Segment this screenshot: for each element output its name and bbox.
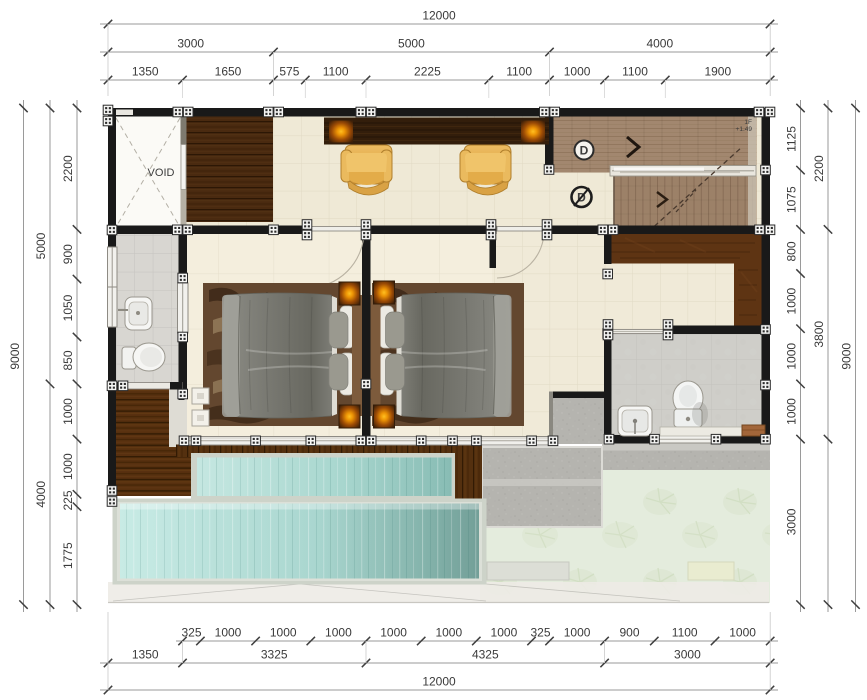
svg-text:1100: 1100 [622, 65, 648, 79]
svg-text:1000: 1000 [61, 398, 75, 425]
svg-text:2200: 2200 [61, 155, 75, 182]
svg-text:575: 575 [279, 65, 299, 79]
svg-text:1100: 1100 [323, 65, 349, 79]
svg-text:325: 325 [530, 626, 550, 640]
svg-text:1900: 1900 [704, 65, 731, 79]
svg-text:2225: 2225 [414, 65, 441, 79]
svg-text:1650: 1650 [215, 65, 242, 79]
svg-text:3000: 3000 [785, 508, 799, 535]
svg-text:5000: 5000 [34, 232, 48, 259]
svg-text:+1.49: +1.49 [736, 126, 753, 133]
svg-text:VOID: VOID [148, 167, 175, 179]
svg-text:1050: 1050 [61, 294, 75, 321]
svg-text:1000: 1000 [491, 626, 518, 640]
svg-text:5000: 5000 [398, 37, 425, 51]
svg-text:225: 225 [61, 490, 75, 510]
svg-text:3000: 3000 [674, 648, 701, 662]
svg-text:1000: 1000 [380, 626, 407, 640]
svg-text:9000: 9000 [8, 343, 22, 370]
svg-text:1075: 1075 [785, 186, 799, 213]
svg-text:1000: 1000 [270, 626, 297, 640]
svg-text:1000: 1000 [215, 626, 242, 640]
svg-text:1350: 1350 [132, 648, 159, 662]
svg-text:3800: 3800 [812, 321, 826, 348]
svg-text:3000: 3000 [177, 37, 204, 51]
svg-text:4000: 4000 [34, 481, 48, 508]
svg-text:900: 900 [619, 626, 639, 640]
svg-text:1100: 1100 [672, 626, 698, 640]
svg-text:4000: 4000 [646, 37, 673, 51]
svg-text:900: 900 [61, 244, 75, 264]
svg-text:1100: 1100 [506, 65, 532, 79]
svg-text:1000: 1000 [435, 626, 462, 640]
svg-text:1000: 1000 [785, 398, 799, 425]
svg-text:4325: 4325 [472, 648, 499, 662]
svg-text:1000: 1000 [785, 287, 799, 314]
svg-text:D: D [580, 144, 589, 158]
svg-text:1000: 1000 [325, 626, 352, 640]
svg-text:9000: 9000 [840, 343, 854, 370]
svg-text:12000: 12000 [422, 9, 456, 23]
svg-text:325: 325 [181, 626, 201, 640]
svg-text:1775: 1775 [61, 542, 75, 569]
svg-text:800: 800 [785, 241, 799, 261]
svg-text:1F: 1F [744, 119, 752, 126]
svg-text:12000: 12000 [422, 675, 456, 689]
svg-text:1000: 1000 [729, 626, 756, 640]
svg-text:3325: 3325 [261, 648, 288, 662]
svg-text:850: 850 [61, 350, 75, 370]
svg-text:1000: 1000 [61, 453, 75, 480]
svg-text:1000: 1000 [785, 343, 799, 370]
svg-text:1000: 1000 [564, 65, 591, 79]
svg-text:1125: 1125 [785, 126, 799, 152]
svg-text:1350: 1350 [132, 65, 159, 79]
svg-text:2200: 2200 [812, 155, 826, 182]
svg-text:1000: 1000 [564, 626, 591, 640]
